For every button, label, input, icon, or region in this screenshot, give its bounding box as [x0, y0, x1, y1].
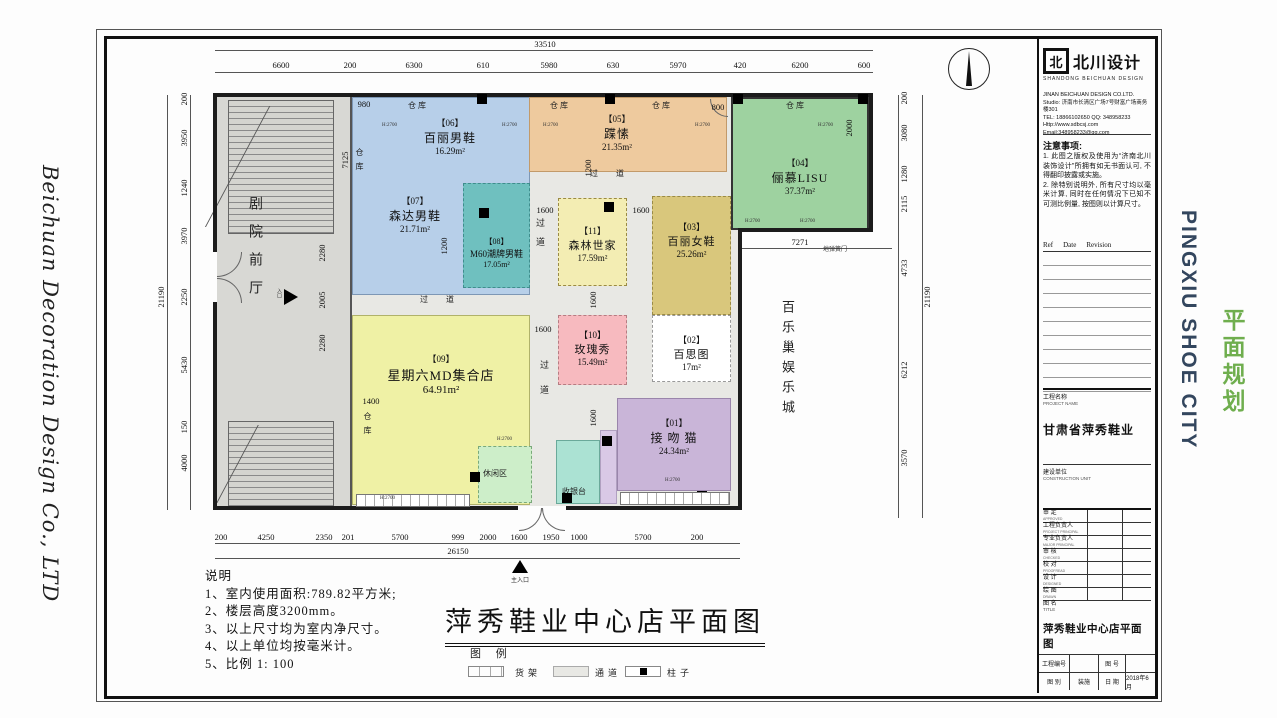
- height-label: H:2700: [380, 496, 395, 501]
- dim-bot-6: 2000: [480, 532, 497, 542]
- wall-right-lower: [738, 228, 742, 510]
- dim-1600c: 1600: [535, 324, 552, 334]
- column: [605, 94, 615, 104]
- dim-bot-8: 1950: [543, 532, 560, 542]
- column: [562, 493, 572, 503]
- legend-shelf-label: 货架: [515, 666, 541, 679]
- project-label-en: PROJECT NAME: [1043, 401, 1151, 406]
- note-5: 5、比例 1: 100: [205, 656, 465, 674]
- project-name: 甘肃省萍秀鞋业: [1043, 421, 1151, 438]
- note-4: 4、以上单位均按毫米计。: [205, 638, 465, 656]
- column: [479, 208, 489, 218]
- notes-block: 说明 1、室内使用面积:789.82平方米; 2、楼层高度3200mm。 3、以…: [205, 568, 465, 673]
- dim-top-7: 420: [734, 60, 747, 70]
- dim-bot-0: 200: [215, 532, 228, 542]
- figure-label: 图 名: [1043, 598, 1151, 607]
- dim-top-5: 630: [607, 60, 620, 70]
- sign-row-project-principal: 工程负责人PROJECT PRINCIPAL: [1043, 523, 1151, 536]
- legend-column-icon: [625, 666, 661, 677]
- dim-right-0: 200: [899, 92, 909, 105]
- dim-1200a: 1200: [439, 238, 449, 255]
- drawing-title: 萍秀鞋业中心店平面图: [445, 600, 765, 647]
- stairs-bottom: [228, 421, 334, 508]
- figure-name: 萍秀鞋业中心店平面图: [1043, 621, 1151, 651]
- legend-shelf-icon: [468, 666, 504, 677]
- height-label: H:2700: [497, 437, 512, 442]
- dim-left-0: 200: [179, 93, 189, 106]
- dim-left-total: 21190: [156, 287, 166, 308]
- room-05-label: 【05】蹀愫21.35m²: [530, 112, 704, 152]
- dim-top-4: 5980: [541, 60, 558, 70]
- dim-bot-7: 1600: [511, 532, 528, 542]
- warehouse-label-v2: 仓库: [362, 412, 373, 440]
- room-04-label: 【04】俪慕LISU37.37m²: [731, 156, 869, 196]
- revision-row: [1043, 252, 1151, 266]
- outside-label: 百乐巢娱乐城: [778, 300, 797, 475]
- sign-row-checked: 审 核CHECKED: [1043, 549, 1151, 562]
- room-08-label: 【08】M60潮牌男鞋17.05m²: [461, 236, 532, 269]
- height-label: H:2700: [695, 123, 710, 128]
- revision-row: [1043, 336, 1151, 350]
- main-entrance-label: 主入口: [511, 575, 529, 584]
- column: [733, 94, 743, 104]
- dim-right-4: 4733: [899, 260, 909, 277]
- north-arrow-icon: [948, 48, 990, 90]
- legend-aisle-icon: [553, 666, 589, 677]
- dim-2005: 2005: [317, 292, 327, 309]
- revision-row: [1043, 294, 1151, 308]
- sign-row-major-principal: 专业负责人MAJOR PRINCIPAL: [1043, 536, 1151, 549]
- dim-right-6: 3570: [899, 450, 909, 467]
- room-02-label: 【02】百思图17m²: [652, 333, 731, 372]
- floor-spring-door-label: 地弹簧门: [823, 244, 847, 253]
- dim-bot-2: 2350: [316, 532, 333, 542]
- entry-arrow-icon: [284, 289, 298, 305]
- wall-top: [213, 93, 873, 97]
- dim-top-3: 610: [477, 60, 490, 70]
- column: [858, 94, 868, 104]
- revision-header: RefDateRevision: [1043, 241, 1151, 252]
- room-07-label: 【07】森达男鞋21.71m²: [360, 194, 470, 234]
- wall-bottom: [213, 506, 742, 510]
- dim-1400: 1400: [363, 396, 380, 406]
- column: [604, 202, 614, 212]
- sign-row-designed: 设 计DESIGNED: [1043, 575, 1151, 588]
- client-label-en: CONSTRUCTION UNIT: [1043, 476, 1151, 481]
- dim-bot-5: 999: [452, 532, 465, 542]
- shelf-strip-1: [356, 494, 470, 507]
- room-09-label: 【09】星期六MD集合店64.91m²: [352, 352, 530, 396]
- dim-2000: 2000: [844, 120, 854, 137]
- caution-title: 注意事项:: [1043, 139, 1151, 152]
- figure-label-en: TITLE: [1043, 607, 1151, 612]
- column: [477, 94, 487, 104]
- dim-left-1: 3950: [179, 130, 189, 147]
- dim-1600d: 1600: [588, 292, 598, 309]
- dim-7125: 7125: [340, 152, 350, 169]
- dim-top-6: 5970: [670, 60, 687, 70]
- revision-row: [1043, 364, 1151, 378]
- warehouse-label-4: 仓库: [786, 100, 806, 111]
- height-label: H:2700: [745, 219, 760, 224]
- aisle-label-mid: 过 道: [420, 294, 462, 305]
- room-10-label: 【10】玫瑰秀15.49m²: [558, 328, 627, 367]
- dim-2280b: 2280: [317, 335, 327, 352]
- dim-1600b: 1600: [633, 205, 650, 215]
- room-01-label: 【01】接 吻 猫24.34m²: [617, 416, 731, 456]
- main-entrance-arrow: [512, 560, 528, 573]
- drawing-sheet: Beichuan Decoration Design Co., LTD 剧院前厅…: [0, 0, 1277, 718]
- dim-top-0: 6600: [273, 60, 290, 70]
- room-06-label: 【06】百丽男鞋16.29m²: [372, 116, 528, 156]
- note-3: 3、以上尺寸均为室内净尺寸。: [205, 621, 465, 639]
- project-label: 工程名称: [1043, 392, 1151, 401]
- notes-title: 说明: [205, 568, 465, 586]
- height-label: H:2700: [382, 123, 397, 128]
- dim-right-5: 6212: [899, 362, 909, 379]
- revision-row: [1043, 308, 1151, 322]
- entry-label: 入口: [275, 288, 282, 298]
- note-2: 2、楼层高度3200mm。: [205, 603, 465, 621]
- warehouse-label-1: 仓库: [408, 100, 428, 111]
- legend-aisle-label: 通道: [595, 666, 621, 679]
- dim-top-total: 33510: [534, 39, 555, 49]
- height-label: H:2700: [800, 219, 815, 224]
- aisle-label-v1: 过道: [534, 218, 547, 256]
- dim-bot-3: 201: [342, 532, 355, 542]
- aisle-label-v2: 过道: [538, 360, 551, 410]
- dim-1600a: 1600: [537, 205, 554, 215]
- warehouse-label-3: 仓库: [652, 100, 672, 111]
- caution-1: 1. 此图之版权及使用为“济南北川装饰设计”所拥有如无书面认可, 不得翻印披露或…: [1043, 152, 1151, 181]
- footer-row-2: 图 别 装施 日 期 2018年6月: [1039, 672, 1155, 690]
- wall-green-bottom: [742, 228, 873, 232]
- dim-left-7: 4000: [179, 455, 189, 472]
- dim-7271: 7271: [792, 237, 809, 247]
- dim-right-total: 21190: [922, 287, 932, 308]
- dim-top-1: 200: [344, 60, 357, 70]
- note-1: 1、室内使用面积:789.82平方米;: [205, 586, 465, 604]
- left-company-script: Beichuan Decoration Design Co., LTD: [38, 165, 62, 585]
- dim-left-2: 1240: [179, 180, 189, 197]
- client-label: 建设单位: [1043, 467, 1151, 476]
- height-label: H:2700: [543, 123, 558, 128]
- room-11-label: 【11】森林世家17.59m²: [558, 224, 627, 263]
- sign-row-proofread: 校 对PROOFREAD: [1043, 562, 1151, 575]
- revision-row: [1043, 350, 1151, 364]
- dim-bot-total: 26150: [447, 546, 468, 556]
- wall-green-right: [869, 93, 873, 232]
- title-block: 北 北川设计 SHANDONG BEICHUAN DESIGN JINAN BE…: [1037, 36, 1155, 693]
- dim-top-2: 6300: [406, 60, 423, 70]
- dim-bot-11: 200: [691, 532, 704, 542]
- dim-2280a: 2280: [317, 245, 327, 262]
- beichuan-logo-icon: 北: [1043, 48, 1069, 74]
- studio-address: JINAN BEICHUAN DESIGN CO.LTD. Studio: 济南…: [1043, 92, 1151, 137]
- logo-name: 北川设计: [1073, 49, 1141, 73]
- dim-bot-9: 1000: [571, 532, 588, 542]
- revision-row: [1043, 322, 1151, 336]
- dim-1200b: 1200: [583, 160, 593, 177]
- dim-left-3: 3970: [179, 228, 189, 245]
- dim-bot-10: 5700: [635, 532, 652, 542]
- dim-right-2: 1280: [899, 166, 909, 183]
- caution-2: 2. 除特别说明外, 所有尺寸均以毫米计算, 同时在任何情况下已知不可测比例量,…: [1043, 181, 1151, 210]
- revision-row: [1043, 266, 1151, 280]
- logo-subtitle: SHANDONG BEICHUAN DESIGN: [1043, 76, 1151, 82]
- dim-right-3: 2115: [899, 196, 909, 213]
- height-label: H:2700: [665, 478, 680, 483]
- warehouse-label-2: 仓库: [550, 100, 570, 111]
- aisle-label-top: 过 道: [590, 168, 632, 179]
- dim-bot-4: 5700: [392, 532, 409, 542]
- dim-980: 980: [358, 99, 371, 109]
- dim-left-5: 5430: [179, 357, 189, 374]
- dim-800: 800: [712, 102, 725, 112]
- dim-1600e: 1600: [588, 410, 598, 427]
- dim-bot-1: 4250: [258, 532, 275, 542]
- dim-right-1: 3080: [899, 125, 909, 142]
- footer-row-1: 工程编号 图 号: [1039, 654, 1155, 672]
- revision-row: [1043, 280, 1151, 294]
- column: [470, 472, 480, 482]
- warehouse-label-v1: 仓库: [354, 148, 365, 176]
- legend-column-label: 柱子: [667, 666, 693, 679]
- plan-planning-text: 平面规划: [1215, 308, 1249, 416]
- dim-top-8: 6200: [792, 60, 809, 70]
- dim-top-9: 600: [858, 60, 871, 70]
- height-label: H:2700: [818, 123, 833, 128]
- column: [602, 436, 612, 446]
- legend-title: 图 例: [470, 645, 513, 661]
- dim-left-6: 150: [179, 421, 189, 434]
- dim-left-4: 2250: [179, 289, 189, 306]
- room-03-label: 【03】百丽女鞋25.26m²: [652, 220, 731, 259]
- hall-label: 剧院前厅: [244, 196, 264, 376]
- shelf-strip-2: [620, 492, 730, 505]
- sign-row-approved: 审 定APPROVED: [1043, 510, 1151, 523]
- pingxiu-shoe-city-text: PINGXIU SHOE CITY: [1176, 210, 1200, 500]
- height-label: H:2700: [502, 123, 517, 128]
- rest-area-label: 休闲区: [483, 468, 507, 479]
